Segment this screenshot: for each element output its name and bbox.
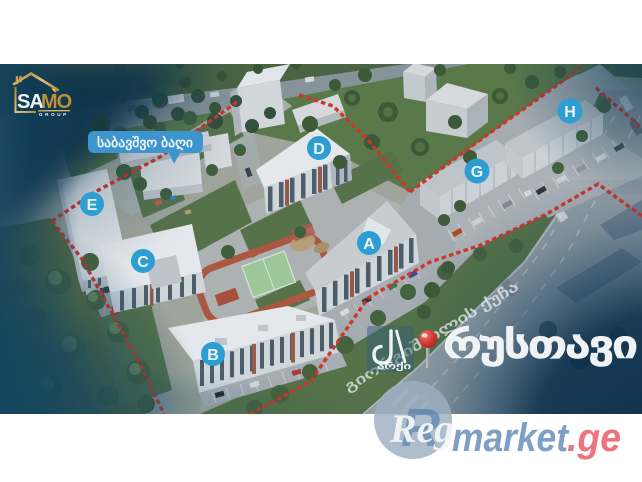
svg-text:market: market xyxy=(452,416,569,460)
svg-text:Reg: Reg xyxy=(389,406,454,451)
svg-text:.ge: .ge xyxy=(567,416,621,460)
